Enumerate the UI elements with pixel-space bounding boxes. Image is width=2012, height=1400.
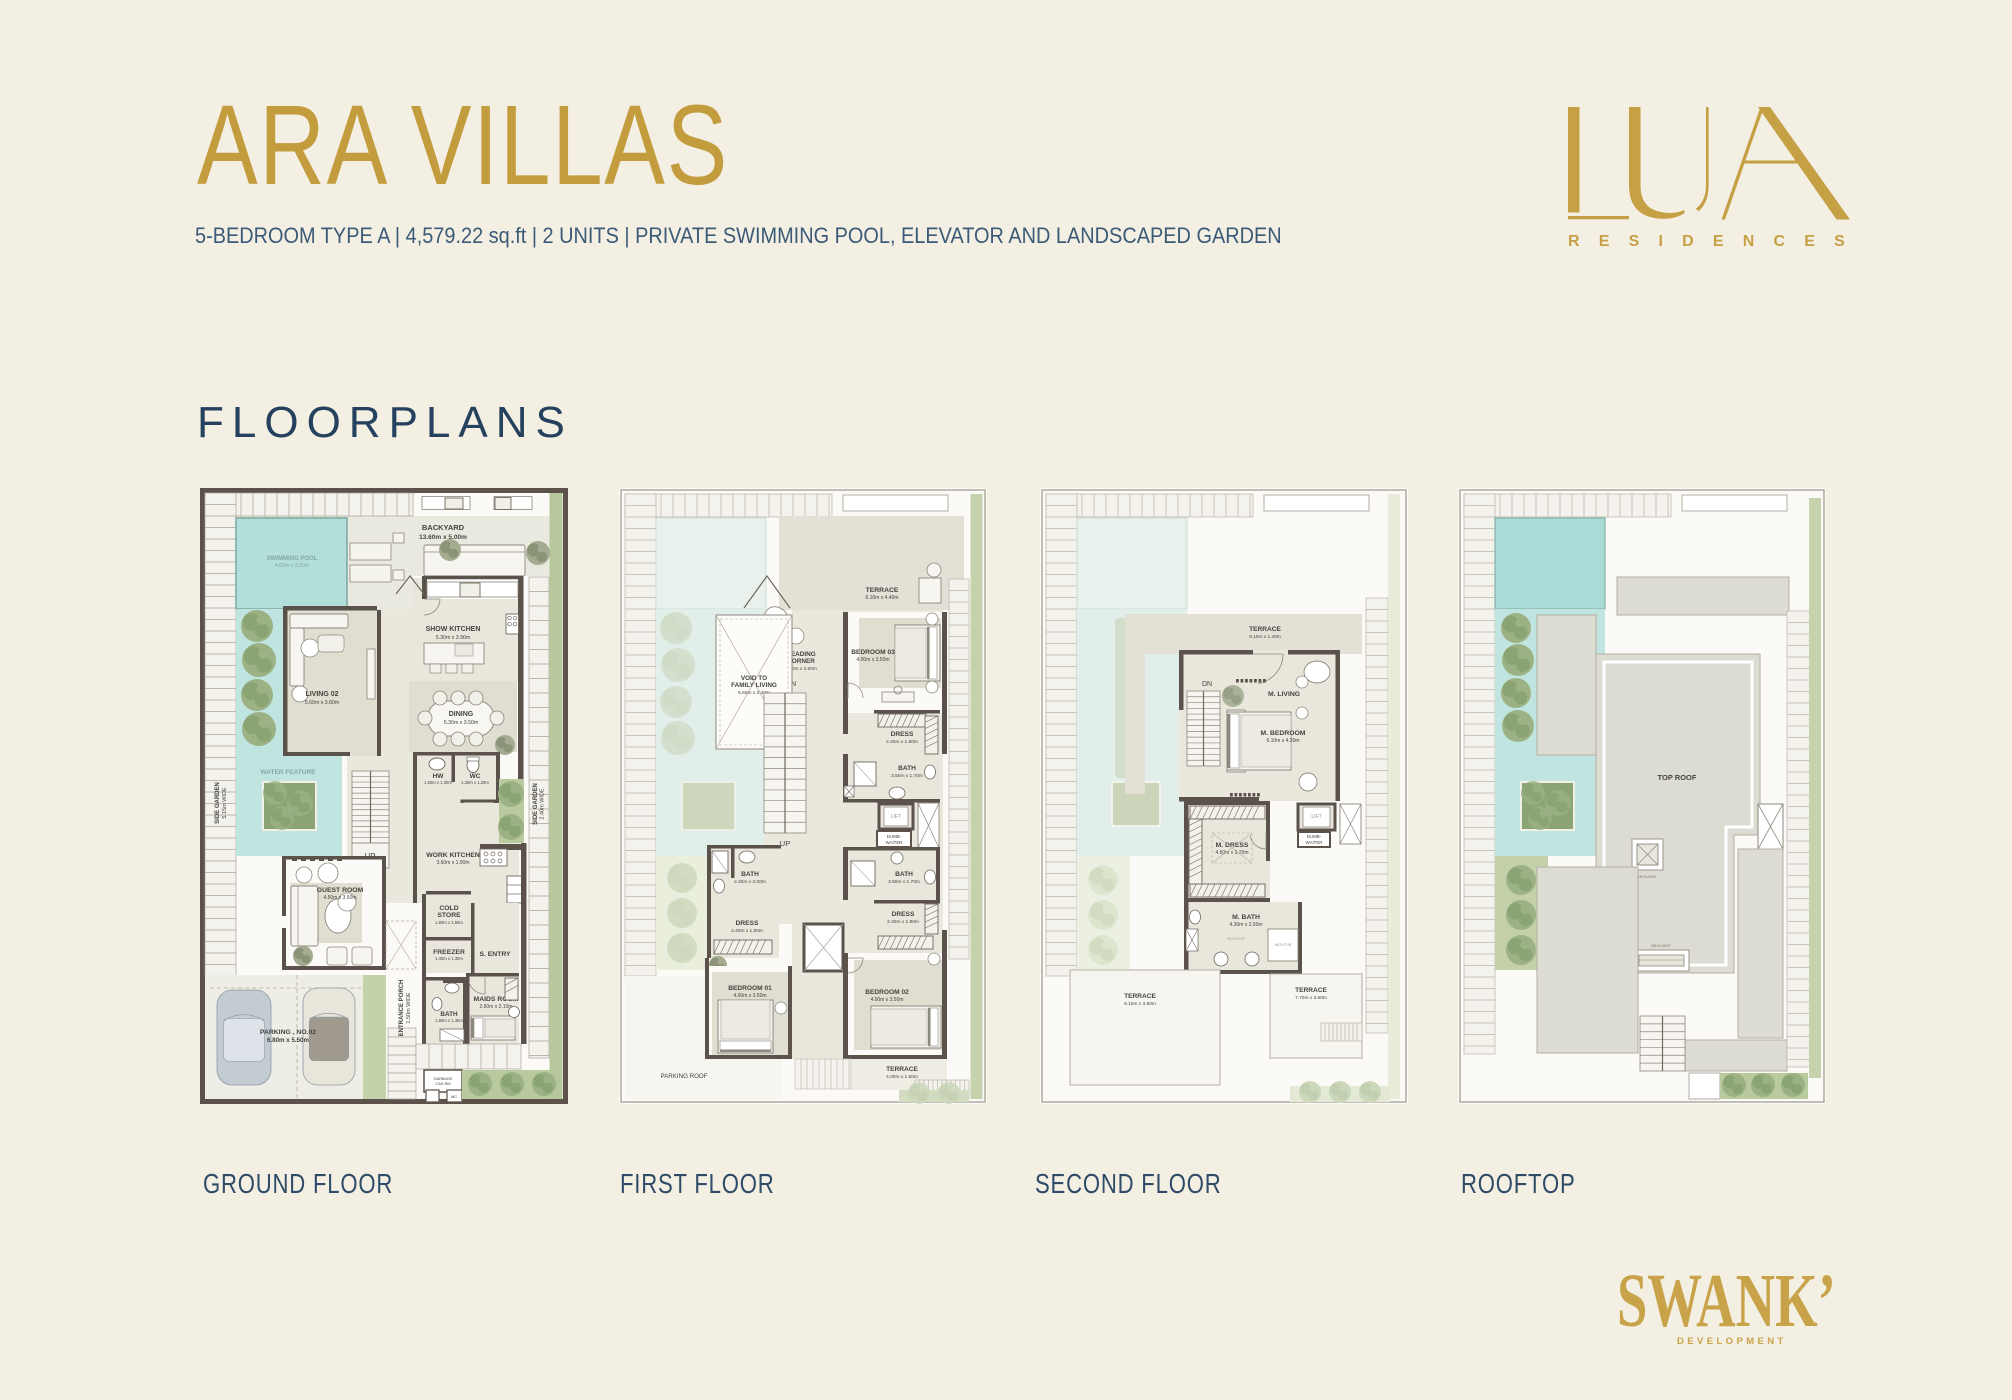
svg-text:LIFT: LIFT [1311, 814, 1321, 820]
svg-text:MC: MC [451, 1094, 457, 1099]
svg-text:1.30m x 1.20m: 1.30m x 1.20m [461, 780, 489, 785]
svg-text:BATHTUB: BATHTUB [1275, 943, 1292, 947]
svg-text:BEDROOM 03: BEDROOM 03 [851, 649, 895, 656]
svg-text:3.50m x 1.70m: 3.50m x 1.70m [891, 773, 923, 779]
svg-text:1.80m x 1.30m: 1.80m x 1.30m [435, 1018, 463, 1023]
svg-text:BATH: BATH [741, 871, 759, 878]
svg-text:5.30m x 3.90m: 5.30m x 3.90m [436, 635, 470, 641]
svg-text:UP: UP [780, 839, 790, 848]
svg-text:TERRACE: TERRACE [886, 1066, 918, 1073]
svg-text:M. BEDROOM: M. BEDROOM [1261, 730, 1306, 737]
svg-text:M. BATH: M. BATH [1232, 914, 1260, 921]
svg-text:CAN RM: CAN RM [436, 1082, 451, 1086]
svg-text:S. ENTRY: S. ENTRY [479, 951, 511, 958]
svg-text:TERRACE: TERRACE [1249, 626, 1281, 633]
svg-text:5.60m x 3.60m: 5.60m x 3.60m [305, 700, 339, 706]
svg-text:13.60m x 5.00m: 13.60m x 5.00m [419, 534, 467, 541]
svg-text:2.40m x 1.80m: 2.40m x 1.80m [731, 928, 763, 934]
svg-text:WORK KITCHEN: WORK KITCHEN [426, 852, 480, 859]
svg-text:DINING: DINING [449, 711, 474, 718]
svg-text:SHOW KITCHEN: SHOW KITCHEN [426, 626, 481, 633]
svg-text:M. LIVING: M. LIVING [1268, 691, 1300, 698]
svg-text:VOID TO: VOID TO [741, 675, 767, 682]
svg-text:RESIDENCES: RESIDENCES [1568, 233, 1860, 250]
svg-text:GARBAGE: GARBAGE [434, 1077, 453, 1081]
svg-text:PARKING ROOF: PARKING ROOF [661, 1073, 708, 1080]
svg-text:1.50m WIDE: 1.50m WIDE [406, 992, 412, 1024]
svg-text:4.30m x 2.50m: 4.30m x 2.50m [1229, 922, 1262, 928]
svg-text:LIFT: LIFT [891, 814, 901, 820]
svg-text:DN: DN [1202, 681, 1212, 688]
svg-text:6.10m x 4.40m: 6.10m x 4.40m [865, 595, 898, 601]
svg-text:SWANK’: SWANK’ [1617, 1259, 1836, 1343]
svg-text:TERRACE: TERRACE [1295, 987, 1327, 994]
svg-text:2.60m x 2.10m: 2.60m x 2.10m [479, 1004, 512, 1010]
svg-text:1.50m x 1.30m: 1.50m x 1.30m [424, 780, 452, 785]
svg-text:2.40m x 1.80m: 2.40m x 1.80m [887, 919, 919, 925]
svg-text:6.80m x 5.50m: 6.80m x 5.50m [267, 1037, 309, 1044]
svg-text:5.15m WIDE: 5.15m WIDE [222, 787, 228, 819]
svg-text:SWIMMING POOL: SWIMMING POOL [267, 556, 318, 562]
svg-text:BATH: BATH [440, 1011, 458, 1018]
svg-text:TERRACE: TERRACE [1124, 993, 1156, 1000]
svg-text:SIDE GARDEN: SIDE GARDEN [533, 783, 539, 825]
svg-text:2.40m WIDE: 2.40m WIDE [540, 788, 546, 820]
svg-text:SKYLIGHT: SKYLIGHT [1227, 937, 1246, 941]
svg-text:BEDROOM 02: BEDROOM 02 [865, 989, 909, 996]
svg-text:6.10m x 4.20m: 6.10m x 4.20m [1266, 738, 1299, 744]
svg-text:DRESS: DRESS [892, 911, 915, 918]
svg-text:2.40m x 2.00m: 2.40m x 2.00m [734, 879, 766, 885]
svg-text:4.00m x 3.50m: 4.00m x 3.50m [733, 993, 766, 999]
svg-text:BATH: BATH [898, 765, 916, 772]
svg-text:GUEST ROOM: GUEST ROOM [317, 887, 364, 894]
svg-text:4.50m x 3.20m: 4.50m x 3.20m [1215, 850, 1248, 856]
svg-text:4.50m x 3.50m: 4.50m x 3.50m [323, 895, 356, 901]
svg-text:9.10m x 1.40m: 9.10m x 1.40m [1249, 634, 1281, 640]
svg-text:8.10m x 3.60m: 8.10m x 3.60m [1124, 1001, 1156, 1007]
svg-text:SKYLIGHT: SKYLIGHT [1651, 943, 1671, 948]
svg-text:HW: HW [433, 773, 445, 780]
svg-text:4.00m x 3.50m: 4.00m x 3.50m [870, 997, 903, 1003]
svg-text:TERRACE: TERRACE [866, 587, 899, 594]
svg-text:2.40m x 1.80m: 2.40m x 1.80m [886, 739, 918, 745]
svg-text:1.40m x 1.30m: 1.40m x 1.30m [435, 956, 463, 961]
svg-text:DRESS: DRESS [891, 731, 914, 738]
svg-text:DRESS: DRESS [736, 920, 759, 927]
svg-text:5.30m x 3.50m: 5.30m x 3.50m [444, 720, 478, 726]
svg-text:WAITER: WAITER [886, 840, 903, 845]
svg-text:ENTRANCE PORCH: ENTRANCE PORCH [399, 980, 405, 1037]
svg-text:WATER FEATURE: WATER FEATURE [260, 769, 316, 776]
svg-text:STORE: STORE [437, 912, 461, 919]
svg-text:TOP ROOF: TOP ROOF [1658, 773, 1697, 782]
svg-text:4.00m x 3.50m: 4.00m x 3.50m [275, 563, 309, 569]
svg-text:WAITER: WAITER [1306, 840, 1323, 845]
svg-text:4.00m x 3.50m: 4.00m x 3.50m [856, 657, 889, 663]
svg-text:SIDE GARDEN: SIDE GARDEN [215, 782, 221, 824]
svg-text:FAMILY LIVING: FAMILY LIVING [731, 682, 777, 689]
svg-text:COLD: COLD [439, 905, 458, 912]
svg-text:7.70m x 3.60m: 7.70m x 3.60m [1295, 995, 1327, 1001]
svg-text:4.00m x 1.50m: 4.00m x 1.50m [886, 1074, 918, 1080]
svg-text:DUMB-: DUMB- [1307, 834, 1322, 839]
svg-text:DUMB-: DUMB- [887, 834, 902, 839]
svg-text:FREEZER: FREEZER [433, 949, 465, 956]
svg-text:BATH: BATH [895, 871, 913, 878]
svg-text:SKYLIGHT: SKYLIGHT [1637, 874, 1657, 879]
svg-text:3.60m x 1.90m: 3.60m x 1.90m [436, 860, 469, 866]
svg-text:WC: WC [470, 773, 481, 780]
svg-text:1.80m x 1.50m: 1.80m x 1.50m [435, 920, 463, 925]
svg-text:LIVING 02: LIVING 02 [305, 691, 338, 698]
svg-text:BEDROOM 01: BEDROOM 01 [728, 985, 772, 992]
svg-text:DEVELOPMENT: DEVELOPMENT [1677, 1336, 1787, 1347]
svg-text:BACKYARD: BACKYARD [422, 523, 465, 532]
svg-text:PARKING , NO.02: PARKING , NO.02 [260, 1029, 316, 1036]
svg-text:3.50m x 1.70m: 3.50m x 1.70m [888, 879, 920, 885]
